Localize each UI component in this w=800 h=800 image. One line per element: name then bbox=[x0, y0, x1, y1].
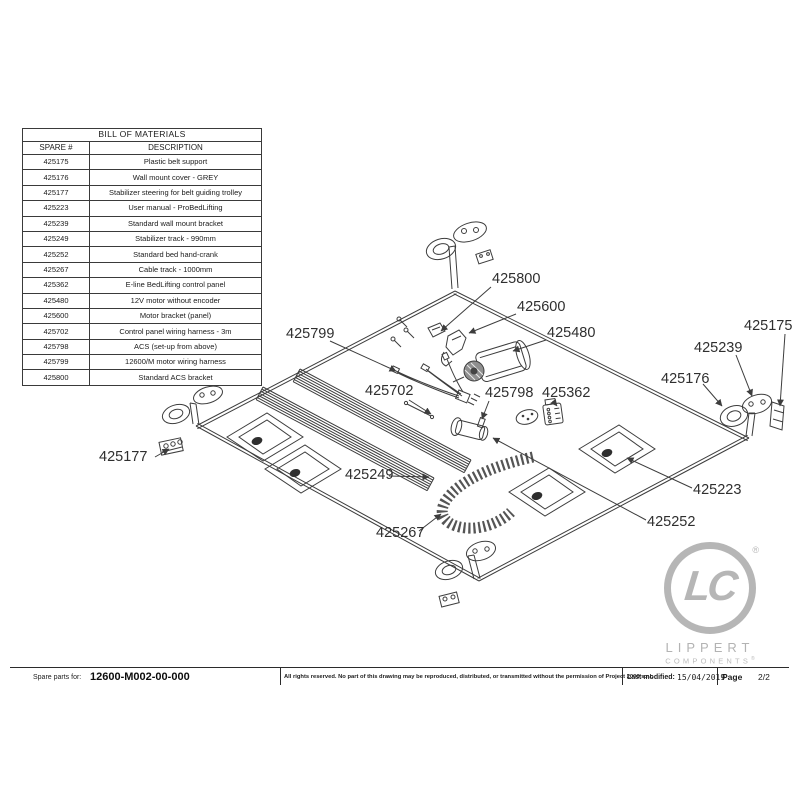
motor-12v bbox=[475, 339, 533, 383]
bed-frame-tubes bbox=[196, 291, 749, 581]
footer-divider bbox=[280, 668, 281, 685]
components-text: COMPONENTS bbox=[665, 657, 751, 666]
lippert-logo-ring: LC ® bbox=[664, 542, 756, 634]
drawing-page: BILL OF MATERIALS SPARE # DESCRIPTION 42… bbox=[0, 0, 800, 800]
last-modified-date: 15/04/2019 bbox=[677, 673, 725, 682]
copyright-notice: All rights reserved. No part of this dra… bbox=[284, 674, 618, 680]
panel bbox=[265, 445, 341, 493]
components-wordmark: COMPONENTS® bbox=[652, 656, 768, 666]
part-label-425252: 425252 bbox=[647, 515, 695, 530]
plastic-belt-support-part bbox=[770, 402, 784, 430]
page-value: 2/2 bbox=[758, 672, 770, 682]
spare-parts-for-label: Spare parts for: bbox=[33, 674, 81, 681]
part-label-425175: 425175 bbox=[744, 319, 792, 334]
part-label-425176: 425176 bbox=[661, 372, 709, 387]
part-label-425702: 425702 bbox=[365, 384, 413, 399]
wall-mount-left bbox=[160, 383, 225, 427]
registered-mark: ® bbox=[752, 545, 759, 555]
hand-crank bbox=[449, 417, 489, 443]
panel bbox=[227, 413, 303, 461]
acs-part bbox=[477, 407, 539, 427]
panel bbox=[509, 468, 585, 516]
part-label-425177: 425177 bbox=[99, 450, 147, 465]
part-label-425239: 425239 bbox=[694, 341, 742, 356]
part-label-425600: 425600 bbox=[517, 300, 565, 315]
lippert-monogram: LC bbox=[668, 553, 753, 619]
control-panel bbox=[542, 398, 563, 425]
part-label-425362: 425362 bbox=[542, 386, 590, 401]
footer-titleblock: Spare parts for: 12600-M002-00-000 All r… bbox=[10, 667, 789, 685]
part-label-425480: 425480 bbox=[547, 326, 595, 341]
registered-mark-small: ® bbox=[751, 656, 755, 662]
acs-bracket-part bbox=[391, 317, 445, 347]
cable-track-chain bbox=[442, 457, 533, 528]
motor-assembly bbox=[391, 317, 533, 383]
lippert-wordmark: LIPPERT bbox=[652, 640, 768, 655]
motor-bracket-part bbox=[441, 330, 466, 366]
wall-mount-top bbox=[424, 218, 494, 289]
part-label-425223: 425223 bbox=[693, 483, 741, 498]
last-modified-label: Last modified: bbox=[627, 674, 675, 681]
part-label-425798: 425798 bbox=[485, 386, 533, 401]
control-panel-wire bbox=[404, 401, 433, 418]
part-label-425249: 425249 bbox=[345, 468, 393, 483]
page-label: Page bbox=[722, 672, 742, 682]
trolley-bracket-bottom bbox=[439, 592, 459, 607]
drawing-part-number: 12600-M002-00-000 bbox=[90, 671, 190, 683]
part-label-425267: 425267 bbox=[376, 526, 424, 541]
lippert-logo: LC ® LIPPERT COMPONENTS® bbox=[652, 542, 768, 666]
wall-mount-right bbox=[718, 391, 784, 436]
part-label-425799: 425799 bbox=[286, 327, 334, 342]
part-label-425800: 425800 bbox=[492, 272, 540, 287]
